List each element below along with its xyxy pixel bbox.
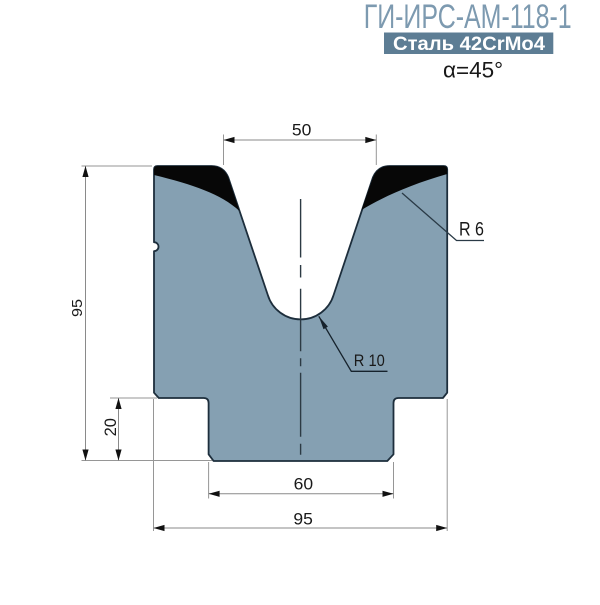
svg-text:Сталь 42CrMo4: Сталь 42CrMo4 <box>393 33 545 55</box>
svg-text:α=45°: α=45° <box>443 58 503 83</box>
svg-text:95: 95 <box>293 509 313 528</box>
svg-text:60: 60 <box>294 474 314 493</box>
svg-text:95: 95 <box>69 299 86 317</box>
svg-text:50: 50 <box>292 121 312 140</box>
svg-text:R 10: R 10 <box>354 351 385 370</box>
svg-text:20: 20 <box>102 418 120 436</box>
svg-text:R 6: R 6 <box>459 220 484 241</box>
svg-text:ГИ-ИРС-АМ-118-1: ГИ-ИРС-АМ-118-1 <box>364 0 572 36</box>
